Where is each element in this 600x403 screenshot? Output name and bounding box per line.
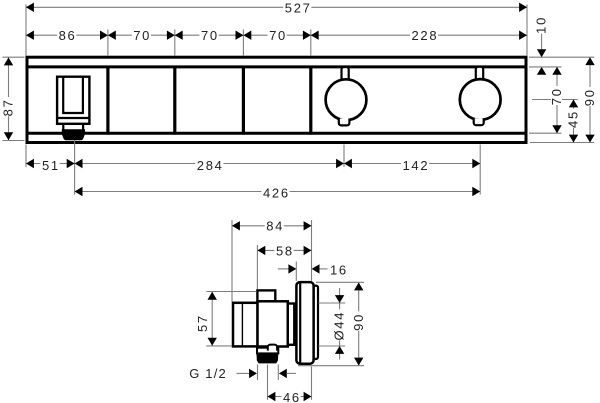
svg-text:Ø44: Ø44: [332, 311, 347, 341]
svg-text:46: 46: [283, 390, 301, 403]
svg-text:426: 426: [263, 186, 290, 201]
svg-text:70: 70: [133, 28, 151, 43]
svg-text:45: 45: [566, 110, 581, 128]
svg-text:51: 51: [42, 158, 60, 173]
svg-text:70: 70: [269, 28, 287, 43]
svg-text:284: 284: [197, 158, 224, 173]
svg-text:84: 84: [266, 219, 284, 234]
svg-text:87: 87: [1, 98, 16, 116]
svg-text:10: 10: [534, 16, 549, 34]
svg-text:86: 86: [59, 28, 77, 43]
svg-text:58: 58: [276, 244, 294, 259]
svg-text:70: 70: [201, 28, 219, 43]
svg-text:142: 142: [403, 158, 430, 173]
svg-text:70: 70: [549, 87, 564, 105]
svg-text:527: 527: [285, 0, 312, 15]
svg-text:90: 90: [582, 88, 597, 106]
svg-text:57: 57: [195, 314, 210, 332]
svg-text:228: 228: [412, 28, 439, 43]
svg-text:16: 16: [330, 262, 348, 277]
svg-text:90: 90: [351, 313, 366, 331]
svg-text:G 1/2: G 1/2: [189, 366, 227, 381]
